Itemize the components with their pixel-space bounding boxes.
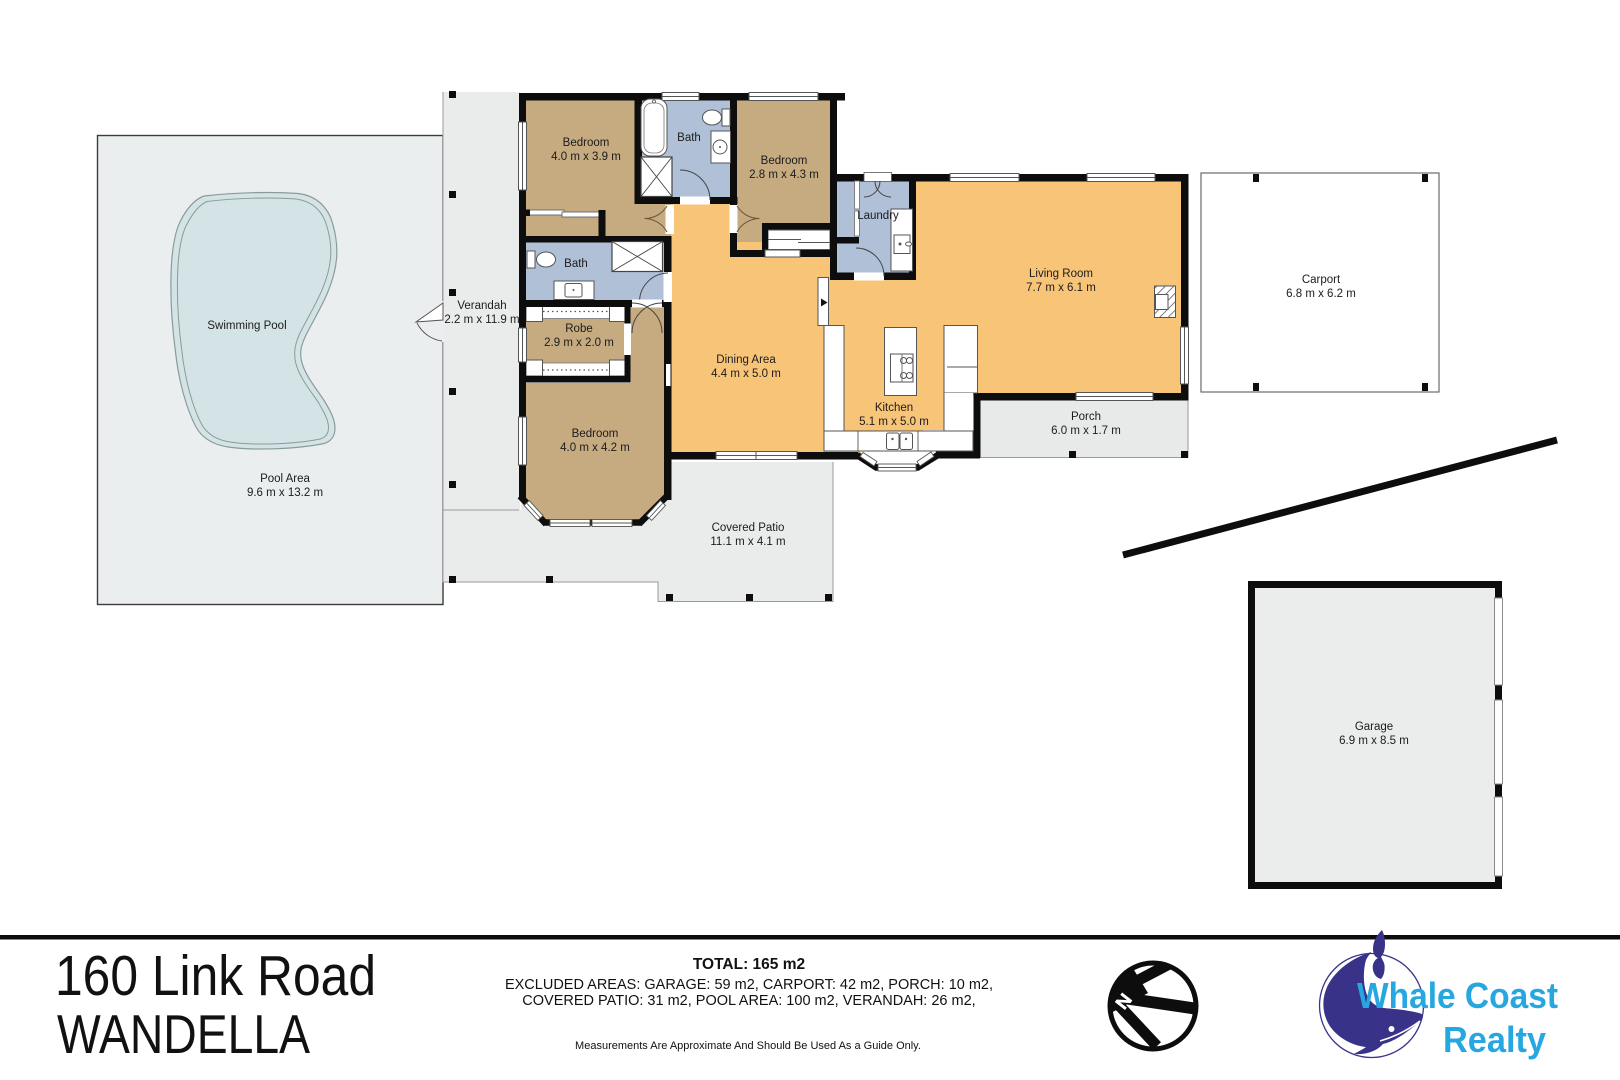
svg-text:Pool Area: Pool Area [260, 473, 310, 485]
svg-text:TOTAL: 165 m2: TOTAL: 165 m2 [693, 956, 805, 973]
svg-text:Robe: Robe [565, 323, 593, 335]
svg-text:Swimming Pool: Swimming Pool [207, 320, 286, 332]
svg-text:11.1 m x 4.1 m: 11.1 m x 4.1 m [710, 536, 785, 548]
svg-text:5.1 m x 5.0 m: 5.1 m x 5.0 m [859, 416, 929, 428]
svg-text:Bath: Bath [564, 258, 588, 270]
svg-text:Dining Area: Dining Area [716, 354, 776, 366]
svg-text:Living Room: Living Room [1029, 268, 1093, 280]
svg-text:Measurements Are Approximate A: Measurements Are Approximate And Should … [575, 1040, 921, 1052]
svg-text:4.0 m x 4.2 m: 4.0 m x 4.2 m [560, 442, 630, 454]
svg-text:Realty: Realty [1443, 1019, 1546, 1060]
svg-text:6.9 m x 8.5 m: 6.9 m x 8.5 m [1339, 735, 1409, 747]
svg-text:4.0 m x 3.9 m: 4.0 m x 3.9 m [551, 151, 621, 163]
svg-text:Laundry: Laundry [857, 210, 899, 222]
svg-text:WANDELLA: WANDELLA [57, 1003, 310, 1065]
svg-text:6.0 m x 1.7 m: 6.0 m x 1.7 m [1051, 425, 1121, 437]
svg-text:Bedroom: Bedroom [572, 428, 619, 440]
svg-text:2.8 m x 4.3 m: 2.8 m x 4.3 m [749, 169, 819, 181]
svg-text:2.2 m x 11.9 m: 2.2 m x 11.9 m [444, 314, 519, 326]
svg-text:9.6 m x 13.2 m: 9.6 m x 13.2 m [247, 487, 323, 499]
svg-text:Verandah: Verandah [457, 300, 506, 312]
svg-text:Bath: Bath [677, 132, 701, 144]
svg-text:6.8 m x 6.2 m: 6.8 m x 6.2 m [1286, 288, 1356, 300]
svg-text:7.7 m x 6.1 m: 7.7 m x 6.1 m [1026, 282, 1096, 294]
svg-text:Whale Coast: Whale Coast [1357, 975, 1558, 1016]
svg-text:2.9 m x 2.0 m: 2.9 m x 2.0 m [544, 337, 614, 349]
svg-text:EXCLUDED AREAS: GARAGE: 59 m2,: EXCLUDED AREAS: GARAGE: 59 m2, CARPORT: … [505, 977, 993, 993]
svg-text:Porch: Porch [1071, 411, 1101, 423]
svg-text:Garage: Garage [1355, 721, 1393, 733]
svg-text:Kitchen: Kitchen [875, 402, 913, 414]
svg-text:4.4 m x 5.0 m: 4.4 m x 5.0 m [711, 368, 781, 380]
svg-text:Carport: Carport [1302, 274, 1341, 286]
svg-text:Bedroom: Bedroom [563, 137, 610, 149]
svg-text:Bedroom: Bedroom [761, 155, 808, 167]
svg-text:COVERED PATIO: 31 m2, POOL ARE: COVERED PATIO: 31 m2, POOL AREA: 100 m2,… [522, 993, 975, 1009]
svg-text:Covered Patio: Covered Patio [712, 522, 785, 534]
svg-text:160 Link Road: 160 Link Road [55, 944, 376, 1008]
